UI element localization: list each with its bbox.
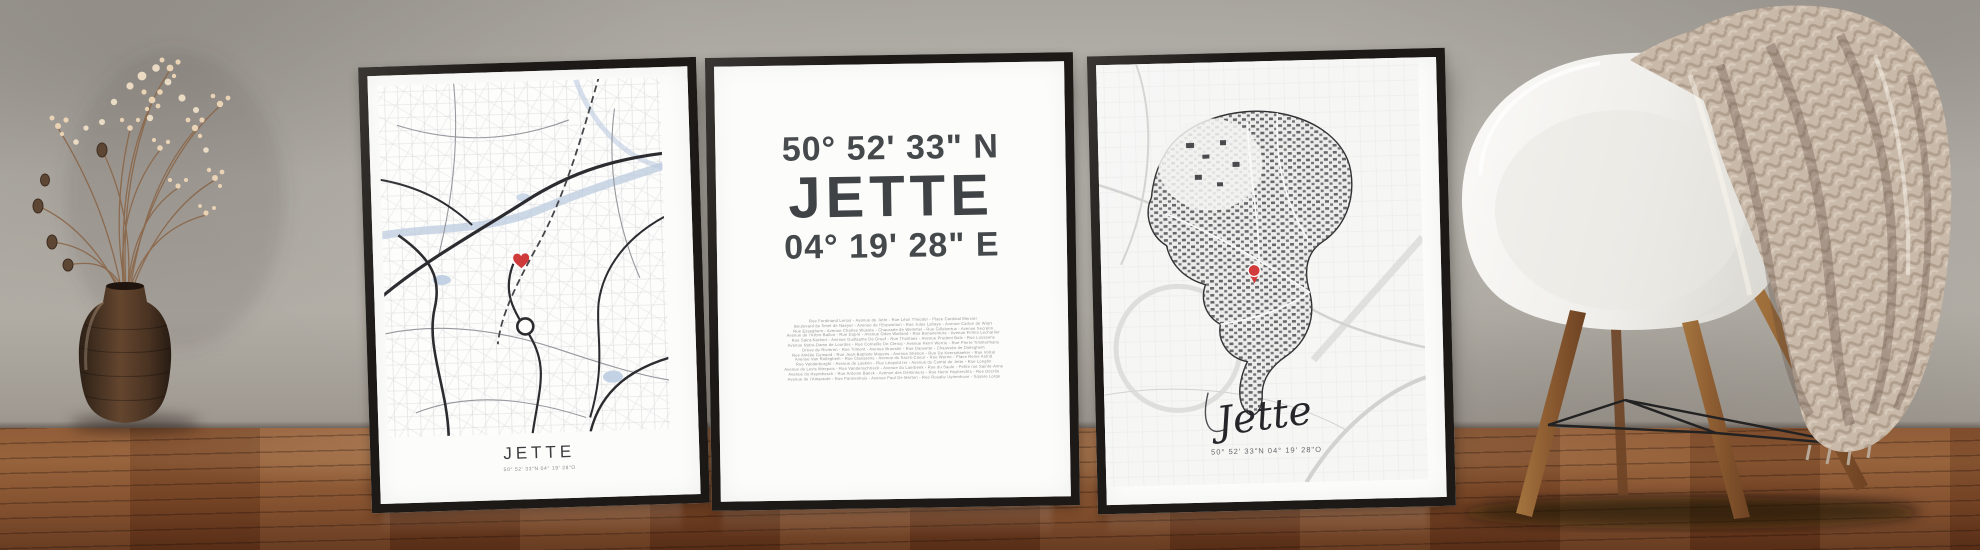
poster-middle-title: JETTE bbox=[716, 165, 1067, 228]
chair-front-right-leg bbox=[1682, 320, 1750, 519]
street-names-paragraph: Rue Ferdinand Lenoir - Avenue de Jette -… bbox=[771, 316, 1016, 382]
longitude-text: 04° 19' 28" E bbox=[717, 223, 1068, 268]
dried-flowers-vase bbox=[10, 10, 300, 445]
poster-left-framed-map: JETTE 50° 52' 33"N 04° 19' 28"O bbox=[358, 57, 710, 513]
poster-left-paper: JETTE 50° 52' 33"N 04° 19' 28"O bbox=[367, 66, 700, 504]
poster-left-caption: JETTE 50° 52' 33"N 04° 19' 28"O bbox=[379, 438, 700, 477]
poster-right-paper: Jette 50° 52' 33"N 04° 19' 28"O bbox=[1096, 57, 1447, 505]
chair-front-left-leg bbox=[1516, 310, 1586, 517]
map-roundabout bbox=[517, 318, 533, 334]
chair-with-blanket bbox=[1420, 5, 1970, 540]
jette-street-map bbox=[378, 77, 671, 438]
poster-right-framed-map: Jette 50° 52' 33"N 04° 19' 28"O bbox=[1087, 48, 1456, 515]
poster-middle-framed-typography: 50° 52' 33" N JETTE 04° 19' 28" E Rue Fe… bbox=[705, 52, 1080, 511]
jette-municipality-map: Jette 50° 52' 33"N 04° 19' 28"O bbox=[1096, 57, 1428, 487]
room-scene: JETTE 50° 52' 33"N 04° 19' 28"O 50° 52' … bbox=[0, 0, 1980, 550]
poster-middle-paper: 50° 52' 33" N JETTE 04° 19' 28" E Rue Fe… bbox=[714, 61, 1071, 501]
